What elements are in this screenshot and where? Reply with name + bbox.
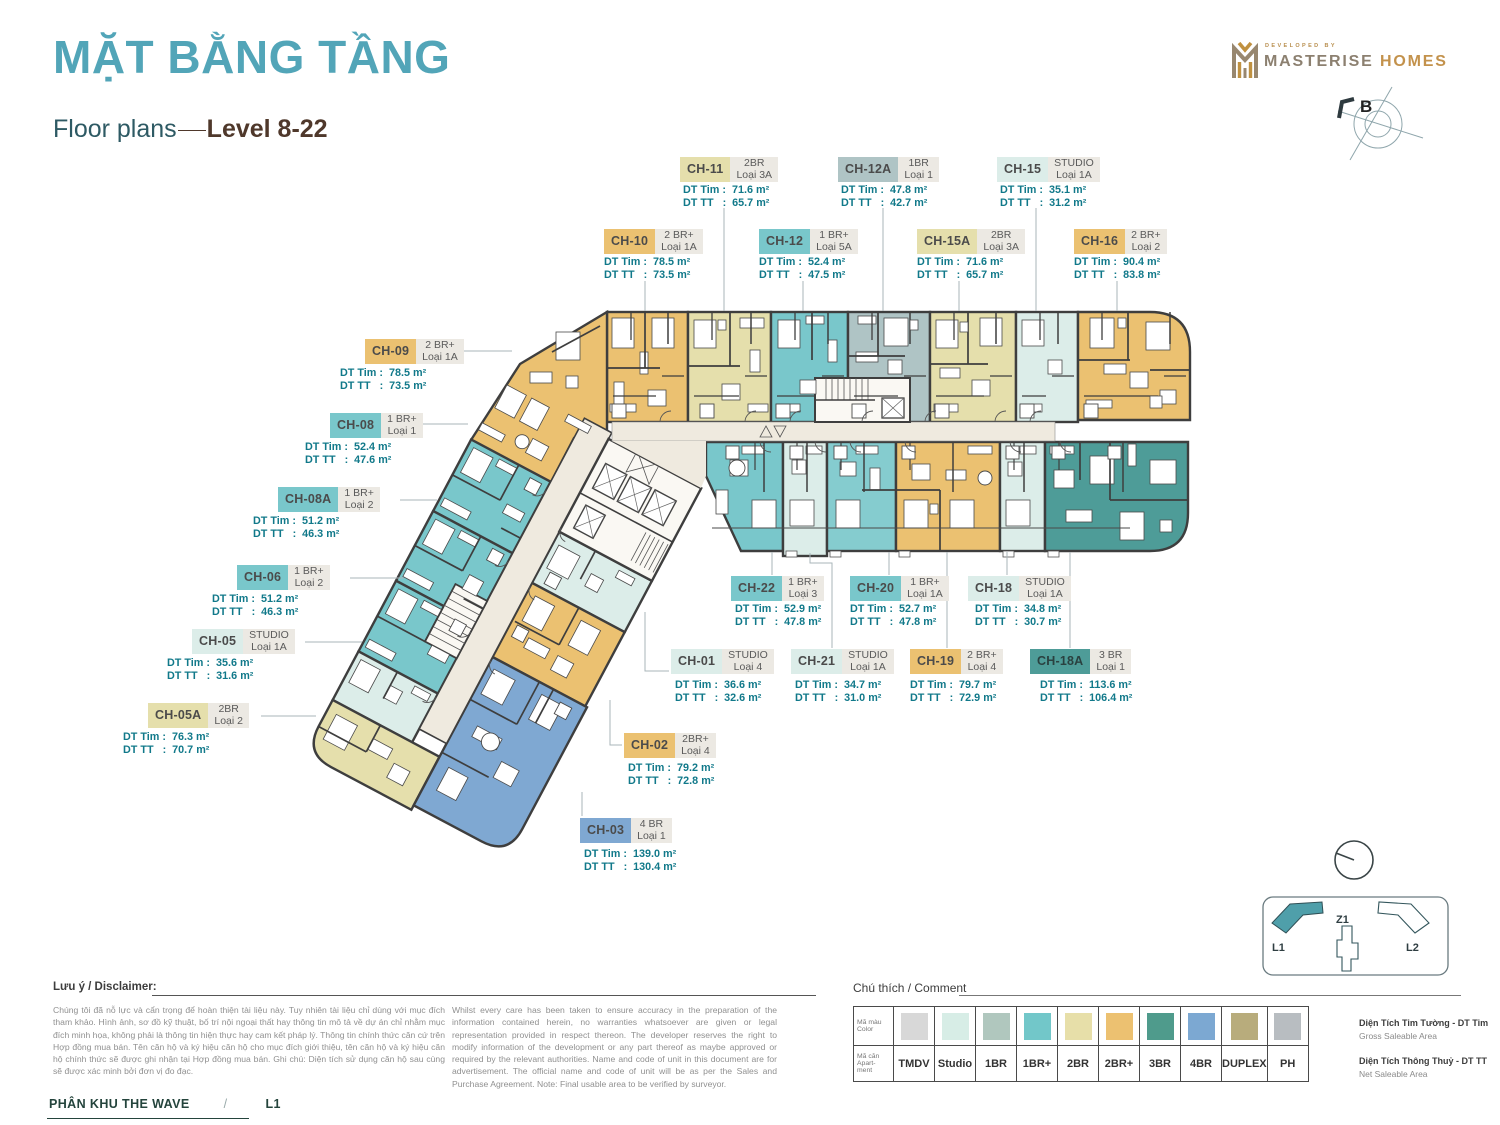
svg-text:DEVELOPED BY: DEVELOPED BY [1265, 43, 1337, 49]
svg-text:MASTERISE: MASTERISE [1264, 53, 1374, 70]
svg-text:Z1: Z1 [1336, 914, 1349, 926]
svg-text:B: B [1360, 97, 1372, 116]
svg-text:HOMES: HOMES [1380, 53, 1448, 70]
svg-text:L1: L1 [1272, 942, 1285, 954]
svg-text:L2: L2 [1406, 942, 1419, 954]
